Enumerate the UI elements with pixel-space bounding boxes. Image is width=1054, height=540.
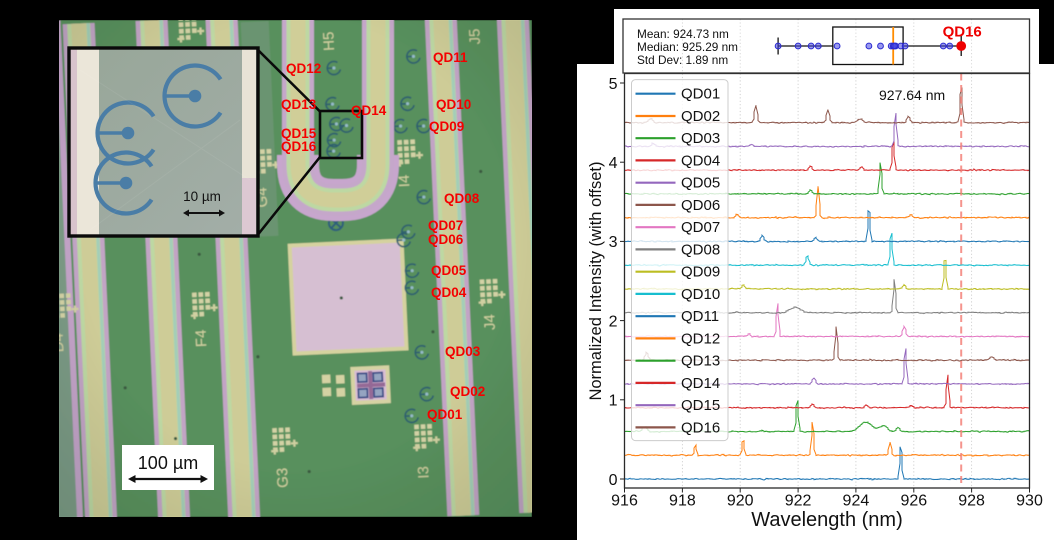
svg-text:QD06: QD06 (428, 232, 464, 247)
svg-text:QD01: QD01 (427, 407, 463, 422)
svg-text:QD04: QD04 (431, 285, 467, 300)
svg-text:QD08: QD08 (681, 241, 720, 258)
svg-text:4: 4 (609, 155, 618, 172)
svg-text:Normalized Intensity (with off: Normalized Intensity (with offset) (587, 161, 605, 400)
svg-text:926: 926 (900, 493, 927, 510)
svg-text:10 µm: 10 µm (183, 189, 221, 204)
svg-text:QD15: QD15 (681, 397, 720, 414)
svg-text:QD13: QD13 (681, 353, 720, 370)
svg-text:QD02: QD02 (681, 108, 720, 125)
svg-text:920: 920 (727, 493, 754, 510)
svg-text:Std Dev: 1.89 nm: Std Dev: 1.89 nm (637, 53, 728, 67)
svg-text:QD13: QD13 (281, 97, 317, 112)
svg-text:QD08: QD08 (444, 191, 480, 206)
svg-text:QD12: QD12 (681, 330, 720, 347)
svg-text:QD11: QD11 (433, 50, 468, 65)
svg-text:QD14: QD14 (681, 375, 720, 392)
svg-text:1: 1 (609, 393, 618, 410)
svg-text:QD09: QD09 (429, 119, 464, 134)
svg-text:QD06: QD06 (681, 197, 720, 214)
svg-text:QD16: QD16 (943, 24, 982, 41)
svg-text:100 µm: 100 µm (138, 453, 198, 473)
svg-text:QD05: QD05 (431, 263, 467, 278)
svg-text:928: 928 (958, 493, 985, 510)
svg-text:QD09: QD09 (681, 264, 720, 281)
svg-text:QD16: QD16 (681, 419, 720, 436)
svg-text:QD10: QD10 (681, 286, 720, 303)
svg-text:QD03: QD03 (445, 344, 481, 359)
svg-text:QD04: QD04 (681, 152, 720, 169)
svg-text:930: 930 (1016, 493, 1043, 510)
svg-text:Wavelength (nm): Wavelength (nm) (751, 509, 903, 531)
svg-text:924: 924 (843, 493, 870, 510)
svg-text:Mean: 924.73 nm: Mean: 924.73 nm (637, 27, 729, 41)
svg-text:QD03: QD03 (681, 130, 720, 147)
svg-text:Median: 925.29 nm: Median: 925.29 nm (637, 40, 738, 54)
svg-text:QD01: QD01 (681, 86, 720, 103)
svg-text:2: 2 (609, 313, 618, 330)
svg-text:QD05: QD05 (681, 175, 720, 192)
svg-text:5: 5 (609, 76, 618, 93)
svg-text:QD10: QD10 (436, 97, 471, 112)
svg-text:916: 916 (611, 493, 638, 510)
svg-text:3: 3 (609, 234, 618, 251)
svg-text:QD12: QD12 (286, 61, 321, 76)
svg-text:QD07: QD07 (681, 219, 720, 236)
svg-text:918: 918 (669, 493, 696, 510)
svg-text:QD11: QD11 (681, 308, 719, 325)
svg-text:QD16: QD16 (281, 139, 317, 154)
svg-text:922: 922 (785, 493, 812, 510)
svg-text:927.64 nm: 927.64 nm (879, 87, 945, 103)
svg-text:0: 0 (609, 472, 618, 489)
svg-text:QD14: QD14 (351, 103, 387, 118)
svg-text:QD02: QD02 (450, 384, 485, 399)
svg-text:QD07: QD07 (428, 218, 463, 233)
